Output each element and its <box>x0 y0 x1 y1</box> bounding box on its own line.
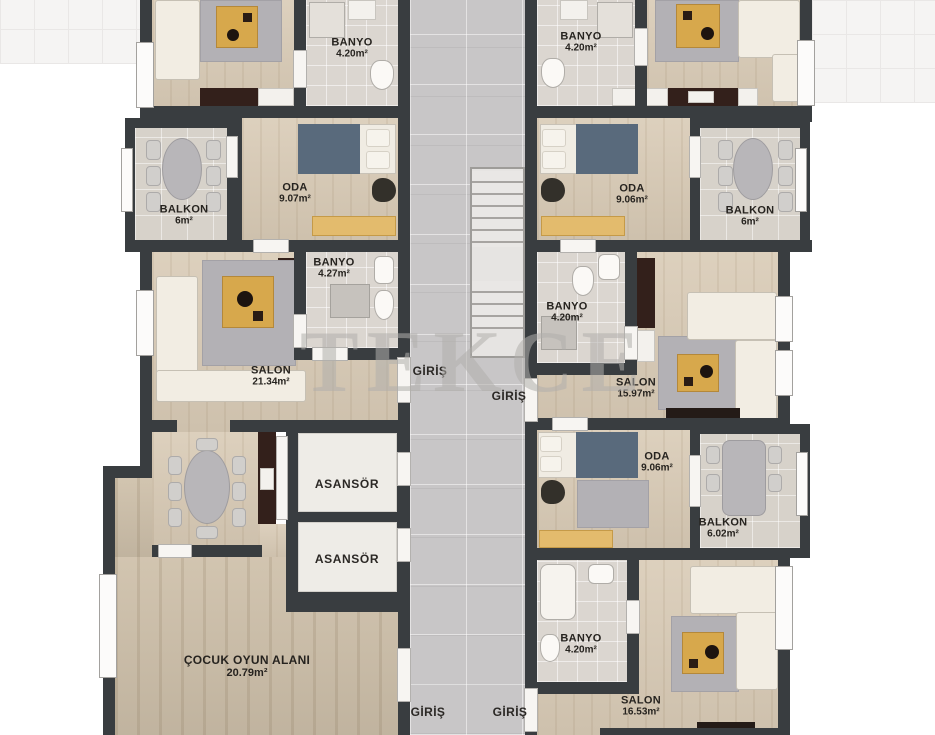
sofa <box>738 0 800 58</box>
chair <box>778 192 793 212</box>
chair <box>232 482 246 501</box>
sink <box>588 564 614 584</box>
elevator-shaft <box>286 420 410 612</box>
chair <box>706 474 720 492</box>
door <box>552 417 588 431</box>
chair <box>778 140 793 160</box>
elevator-label: ASANSÖR <box>315 552 379 566</box>
table-decor <box>237 291 253 307</box>
terrace-top-right <box>812 0 935 103</box>
appliance <box>260 468 274 490</box>
door <box>158 544 192 558</box>
chair <box>232 508 246 527</box>
door <box>560 239 596 253</box>
coffee-table <box>677 354 719 392</box>
chair <box>768 446 782 464</box>
wall <box>537 682 639 694</box>
play-area-floor-jog <box>115 478 152 557</box>
chair <box>706 446 720 464</box>
chair <box>768 474 782 492</box>
shower <box>309 2 345 38</box>
chair <box>232 456 246 475</box>
kitchen-sink <box>688 91 714 103</box>
room-label-oda-bottom-right: ODA 9.06m² <box>641 451 673 474</box>
chair <box>778 166 793 186</box>
door <box>689 136 701 178</box>
window <box>775 350 793 396</box>
room-label-banyo-top-left: BANYO 4.20m² <box>331 37 372 60</box>
door <box>634 28 648 66</box>
chair <box>196 526 218 539</box>
room-label-balkon-top-right: BALKON 6m² <box>726 205 775 228</box>
pillow <box>542 151 566 169</box>
sink <box>374 256 394 284</box>
room-label-oda-top-left: ODA 9.07m² <box>279 182 311 205</box>
kitchen-counter <box>200 88 258 106</box>
table-decor <box>683 11 692 20</box>
tv-unit <box>666 408 740 418</box>
chair <box>196 438 218 451</box>
door <box>226 136 238 178</box>
kitchen-counter <box>738 88 758 106</box>
window <box>797 40 815 106</box>
toilet <box>541 58 565 88</box>
sofa <box>772 54 800 102</box>
dining-table <box>733 138 773 200</box>
plant <box>372 178 396 202</box>
chair <box>718 166 733 186</box>
wardrobe <box>539 530 613 548</box>
window <box>796 452 808 516</box>
sofa <box>687 292 777 340</box>
wall <box>140 252 152 478</box>
table-decor <box>689 659 698 668</box>
room-label-banyo-mid-left: BANYO 4.27m² <box>313 257 354 280</box>
coffee-table <box>216 6 258 48</box>
floor-patch <box>258 524 286 557</box>
chair <box>168 456 182 475</box>
door <box>293 50 307 88</box>
room-label-salon-left: SALON 21.34m² <box>251 365 291 388</box>
floor-plan: BANYO 4.20m² BANYO 4.20m² ODA 9.07m² ODA… <box>0 0 935 735</box>
dining-table <box>722 440 766 516</box>
bed-blanket <box>576 124 638 174</box>
stair-treads-upper <box>472 171 523 247</box>
room-label-play-area: ÇOCUK OYUN ALANI 20.79m² <box>184 653 310 679</box>
table-decor <box>700 365 713 378</box>
window <box>775 566 793 650</box>
chair <box>168 482 182 501</box>
wall <box>537 106 812 118</box>
watermark: TEKCE <box>300 312 648 413</box>
window <box>795 148 807 212</box>
vanity <box>560 0 588 20</box>
room-label-banyo-bottom-right: BANYO 4.20m² <box>560 633 601 656</box>
door <box>276 436 288 520</box>
dining-table <box>162 138 202 200</box>
coffee-table <box>682 632 724 674</box>
sofa <box>155 0 200 80</box>
sink <box>598 254 620 280</box>
dining-table <box>184 450 230 524</box>
wall <box>152 106 398 118</box>
chair <box>206 140 221 160</box>
wardrobe <box>541 216 625 236</box>
elevator-cab <box>298 433 397 512</box>
room-label-balkon-bottom-right: BALKON 6.02m² <box>699 517 748 540</box>
table-decor <box>243 13 252 22</box>
table-decor <box>701 27 714 40</box>
door <box>253 239 289 253</box>
table-decor <box>253 311 263 321</box>
room-label-balkon-top-left: BALKON 6m² <box>160 204 209 227</box>
terrace-top-left <box>0 0 140 64</box>
kitchen-sink <box>258 88 294 106</box>
wardrobe <box>312 216 396 236</box>
elevator-label: ASANSÖR <box>315 477 379 491</box>
pillow <box>366 151 390 169</box>
chair <box>168 508 182 527</box>
vanity <box>348 0 376 20</box>
pillow <box>540 436 562 452</box>
entrance-label: GİRİŞ <box>493 705 528 719</box>
elevator-door <box>397 452 411 486</box>
entrance-label: GİRİŞ <box>411 705 446 719</box>
toilet <box>370 60 394 90</box>
wall <box>140 420 177 432</box>
window <box>121 148 133 212</box>
plant <box>541 480 565 504</box>
coffee-table <box>222 276 274 328</box>
door <box>626 600 640 634</box>
elevator-door <box>397 528 411 562</box>
table-decor <box>705 645 719 659</box>
chair <box>206 166 221 186</box>
sofa <box>156 276 198 374</box>
chair <box>146 140 161 160</box>
room-label-banyo-top-right: BANYO 4.20m² <box>560 31 601 54</box>
toilet <box>540 634 560 662</box>
bed-blanket <box>576 432 638 478</box>
window <box>99 574 117 678</box>
table-decor <box>227 29 239 41</box>
sofa <box>736 612 778 690</box>
room-label-salon-bottom-right: SALON 16.53m² <box>621 695 661 718</box>
window <box>775 296 793 342</box>
pillow <box>542 129 566 147</box>
sofa <box>690 566 780 614</box>
plant <box>541 178 565 202</box>
coffee-table <box>676 4 720 48</box>
shower <box>597 2 633 38</box>
wall <box>600 728 790 735</box>
bathtub <box>540 564 576 620</box>
chair <box>718 140 733 160</box>
sofa <box>735 340 777 424</box>
room-label-oda-top-right: ODA 9.06m² <box>616 183 648 206</box>
toilet <box>572 266 594 296</box>
wall <box>525 548 790 560</box>
chair <box>146 166 161 186</box>
window <box>136 290 154 356</box>
table-decor <box>684 377 693 386</box>
kitchen-counter <box>668 88 738 106</box>
kitchen-cabinet <box>258 432 276 524</box>
pillow <box>540 456 562 472</box>
door <box>689 455 701 507</box>
pillow <box>366 129 390 147</box>
entrance-door <box>397 648 411 702</box>
bed-blanket <box>298 124 360 174</box>
rug <box>577 480 649 528</box>
window <box>136 42 154 108</box>
